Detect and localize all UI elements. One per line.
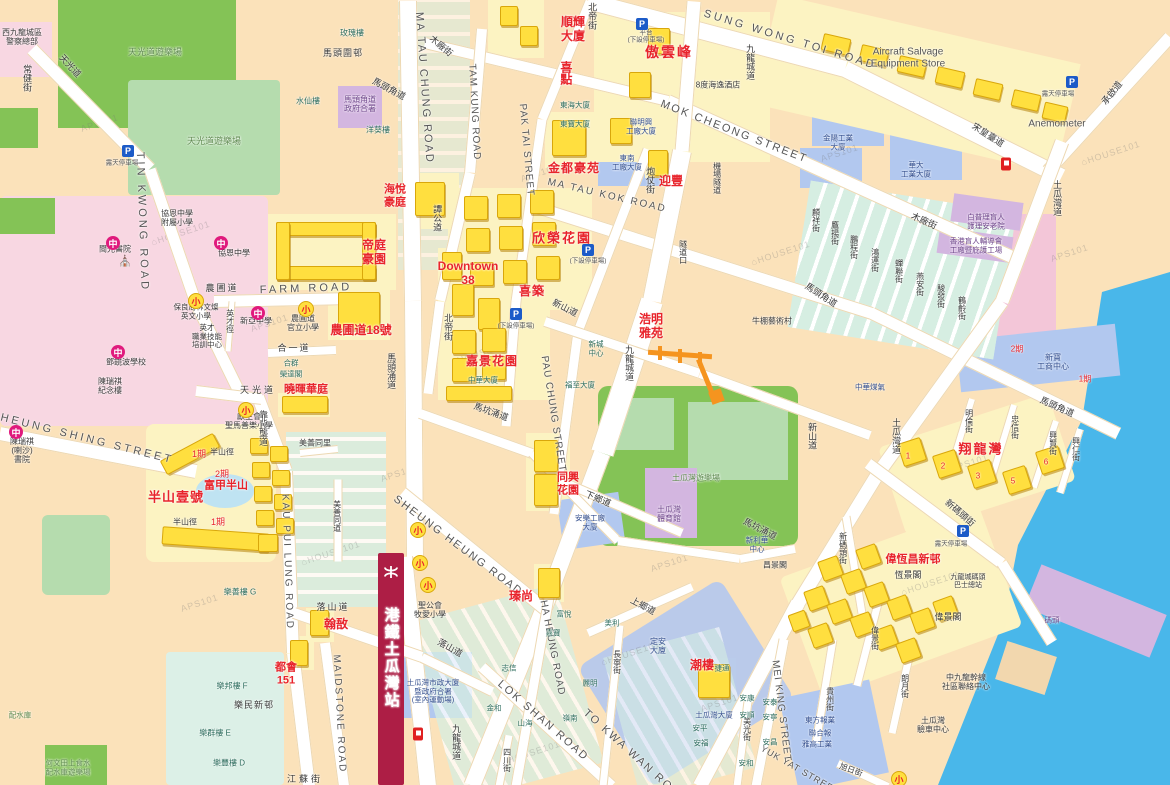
estate-one-lasalle: 半山壹號 <box>148 491 204 506</box>
street-pang-ching: 鵬程街 <box>849 235 858 259</box>
estate-tower <box>482 328 506 352</box>
bldg-fu-yuet: 富悅 <box>557 611 572 620</box>
street-wai-king: 偉景街 <box>870 626 879 650</box>
bldg-sun-po-centre: 新寶 工商中心 <box>1037 353 1069 371</box>
estate-hei-dim: 喜點 <box>558 61 572 85</box>
poi-aircraft-salvage: Aircraft Salvage Equipment Store <box>871 47 946 70</box>
estate-hiu-fai-court: 曉暉華庭 <box>284 384 328 397</box>
bldg-to-kwa-wan-mansion: 土瓜灣大廈 <box>695 712 733 721</box>
poi-harbour-plaza-8-degrees: 8度海逸酒店 <box>696 80 740 89</box>
street-hop-yat: 合一道 <box>277 343 310 353</box>
street-tsun-fat: 駿發街 <box>936 284 945 308</box>
secondary-school-icon: 中 <box>214 236 228 250</box>
street-pak-tai-zh-2: 北帝街 <box>443 314 453 341</box>
estate-tower <box>252 462 270 478</box>
estate-sky-tower: 傲雲峰 <box>645 44 693 60</box>
bldg-rose-house: 玫瑰樓 <box>340 28 364 37</box>
tower-no-3: 3 <box>976 471 980 480</box>
parking-icon: P <box>957 525 969 537</box>
poi-airport-tunnel: 機場隧道 <box>712 162 721 194</box>
bldg-wai-king-court: 偉景閣 <box>934 612 961 622</box>
estate-lok-man-sun-chuen: 樂民新邨 <box>234 700 274 710</box>
estate-chiu-lau: 潮樓 <box>690 659 714 673</box>
petrol-station-icon <box>413 728 423 741</box>
bldg-chung-wah: 中華大廈 <box>468 377 498 386</box>
bldg-shan-hoi: 山海 <box>518 720 533 729</box>
poi-carpark-below-1: (下設停車場) <box>570 257 607 264</box>
poi-ferry-bus-terminus: 九龍城碼頭 巴士總站 <box>951 574 986 590</box>
primary-school-icon: 小 <box>412 555 428 571</box>
estate-celestial-heights: 富甲半山 <box>204 480 248 493</box>
mtr-logo-icon <box>382 563 400 581</box>
parking-icon: P <box>122 145 134 157</box>
watermark: ⌂HOUSE101 <box>1080 139 1142 168</box>
estate-ka-king-garden: 嘉景花園 <box>466 355 518 369</box>
tower-no-2: 2 <box>941 461 945 470</box>
street-yin-on: 燕安街 <box>915 272 924 296</box>
park-to-kwa-wan: 土瓜灣遊樂場 <box>672 473 720 482</box>
street-to-kwa-wan-zh-2: 土瓜灣道 <box>891 418 901 454</box>
estate-tower <box>500 6 518 26</box>
petrol-pump-window <box>416 730 421 735</box>
secondary-school-icon: 中 <box>9 425 23 439</box>
street-tam-kung-zh: 譚公道 <box>432 205 442 232</box>
street-cheung-ning: 長寧街 <box>612 650 621 674</box>
street-sim-luen: 蟬聯街 <box>894 259 903 283</box>
poi-gov-offices: 馬頭角道 政府合署 <box>344 95 376 113</box>
street-half-hill-path-2: 半山徑 <box>173 517 197 526</box>
poi-open-carpark-1: 露天停車場 <box>106 159 139 166</box>
bldg-narcissus-house: 水仙樓 <box>296 96 320 105</box>
bldg-kam-wo: 金和 <box>487 705 502 714</box>
poi-open-carpark-3: 露天停車場 <box>935 540 968 547</box>
estate-hei-chuk: 喜築 <box>519 285 545 299</box>
bldg-oriental-press: 東方報業 <box>805 717 835 726</box>
school-good-shepherd: 聖公會 牧愛小學 <box>414 601 446 619</box>
bldg-nga-ko-industrial: 雅高工業 <box>802 741 832 750</box>
bldg-ling-nam: 嶺南 <box>563 715 578 724</box>
park-ho-man-tin-reservoir: 何文田上食水 配水庫遊樂場 <box>46 759 91 776</box>
estate-tower <box>536 256 560 280</box>
estate-tower <box>446 386 512 401</box>
estate-tower <box>282 396 328 413</box>
pitch-2 <box>688 402 788 480</box>
tower-no-1: 1 <box>906 451 910 460</box>
bldg-tung-nam-factory: 東南 工廠大廈 <box>612 154 642 171</box>
estate-downtown-38: Downtown 38 <box>438 260 499 288</box>
watermark: APS101 <box>179 592 219 614</box>
bldg-on-wo: 安和 <box>739 760 754 769</box>
estate-tower <box>270 446 288 462</box>
street-hok-ling: 鶴齡街 <box>957 296 966 320</box>
street-chung-sun: 忠信街 <box>1010 415 1019 439</box>
estate-chun-seung: 瑧尚 <box>509 590 533 604</box>
primary-school-icon: 小 <box>420 577 436 593</box>
street-kowloon-city-3: 九龍城道 <box>451 724 461 760</box>
street-lun-cheung: 麟祥街 <box>811 208 820 232</box>
secondary-school-icon: 中 <box>251 306 265 320</box>
bldg-chi-shun: 志信 <box>502 665 517 674</box>
bldg-on-cheong: 安昌 <box>763 739 778 748</box>
estate-tower <box>256 510 274 526</box>
orange-footbridge-2 <box>658 346 662 360</box>
park-tin-kwong-label-2: 天光道遊樂場 <box>187 136 241 146</box>
estate-18-farm-road: 農圃道18號 <box>330 324 391 338</box>
poi-blind-workshop: 香港盲人輔導會 工廠暨庇護工場 <box>950 237 1003 254</box>
bldg-yeung-kwai-house: 洋葵樓 <box>366 125 390 134</box>
street-tin-kwong-zh-2: 天光道 <box>240 385 276 395</box>
bldg-tung-po: 東寶大廈 <box>560 121 590 130</box>
bldg-tung-hoi: 東海大廈 <box>560 102 590 111</box>
sun-po-phase-1: 1期 <box>1079 374 1091 383</box>
estate-tung-hing-garden: 同興 花園 <box>557 471 579 496</box>
street-sze-chuen: 四川街 <box>502 748 511 772</box>
petrol-station-icon <box>1001 158 1011 171</box>
poi-podium-carpark: 平台 (下設停車場) <box>628 30 665 45</box>
estate-grand-waterfront: 翔龍灣 <box>958 443 1003 458</box>
poi-vehicle-exam-centre: 土瓜灣 驗車中心 <box>917 716 949 734</box>
estate-tower <box>276 222 290 280</box>
school-heep-yunn: 協恩中學 <box>218 248 250 257</box>
bldg-san-lee-wah: 新利華 中心 <box>746 536 769 553</box>
poi-anemometer: Anemometer <box>1028 118 1085 130</box>
tower-no-5: 5 <box>1011 476 1015 485</box>
petrol-pump-window <box>1004 160 1009 165</box>
street-kowloon-city-1: 九龍城道 <box>745 44 755 80</box>
school-chan-sui-ki-lasalle: 陳瑞祺 (喇沙) 書院 <box>10 437 34 465</box>
street-hing-yin: 興賢街 <box>1048 431 1057 455</box>
park-left-2 <box>0 198 55 234</box>
map-canvas[interactable]: SHEUNG SHING STREETTIN KWONG ROADMA TAU … <box>0 0 1170 785</box>
school-tang-king-po: 鄧鏡波學校 <box>106 357 146 366</box>
bldg-on-shun: 安順 <box>740 712 755 721</box>
street-long-yuet: 朗月街 <box>900 674 909 698</box>
sports-courts-sw <box>42 515 110 595</box>
estate-hon-yu: 翰敔 <box>324 618 348 632</box>
estate-shun-fai: 順輝 大廈 <box>561 16 585 44</box>
street-lok-shan-zh-1: 落山道 <box>316 602 349 612</box>
parking-icon: P <box>636 18 648 30</box>
bldg-kam-yeung-factory: 金陽工業 大廈 <box>823 134 853 151</box>
street-ming-lun: 明倫街 <box>964 409 973 433</box>
street-pau-chung-zh: 炮仗街 <box>645 167 655 194</box>
poi-cattle-depot: 牛棚藝術村 <box>752 316 792 325</box>
bldg-cheong-king-court: 昌景閣 <box>763 560 787 569</box>
poi-police-hq: 西九龍城區 警察總部 <box>2 28 42 46</box>
street-maidstone: MAIDSTONE ROAD <box>330 654 348 773</box>
bldg-on-fook: 安福 <box>694 740 709 749</box>
street-half-hill-path-1: 半山徑 <box>210 447 234 456</box>
secondary-school-icon: 中 <box>106 236 120 250</box>
street-to-kwa-wan-zh-1: 土瓜灣道 <box>1052 180 1062 216</box>
parking-icon: P <box>510 308 522 320</box>
primary-school-icon: 小 <box>238 402 254 418</box>
bldg-wing-tat: 榮達閣 <box>280 371 303 380</box>
poi-ferry-pier: 碼頭 <box>1045 617 1060 626</box>
street-kowloon-city-2: 九龍城道 <box>624 345 634 381</box>
tower-no-6: 6 <box>1044 457 1048 466</box>
church-icon: ⛪ <box>118 255 132 268</box>
street-ma-tau-chung-zh: 馬頭涌道 <box>386 353 396 389</box>
bldg-hang-king-court: 恆景閣 <box>894 570 921 580</box>
bldg-chan-sui-ki-memorial: 陳瑞祺 紀念樓 <box>98 377 122 395</box>
estate-tower <box>254 486 272 502</box>
primary-school-icon: 小 <box>298 301 314 317</box>
poi-bradbury-blind-home: 白普理盲人 護理安老院 <box>967 213 1005 230</box>
bldg-ka-po: 嘉寶 <box>546 630 561 639</box>
street-ying-yeung: 鷹揚街 <box>830 221 839 245</box>
street-hung-wan: 鴻運街 <box>870 248 879 272</box>
estate-tower <box>466 228 490 252</box>
street-mei-kwong: 美光街 <box>742 717 751 741</box>
primary-school-icon: 小 <box>188 293 204 309</box>
bldg-luen-ming-hing: 聯明興 工廠大廈 <box>626 118 656 135</box>
bldg-lai-ming: 麗明 <box>583 680 598 689</box>
sun-po-phase-2: 2期 <box>1011 344 1023 353</box>
estate-tower <box>276 266 376 280</box>
poi-tkw-sports-centre: 土瓜灣 體育館 <box>657 505 681 523</box>
estate-tower <box>272 470 290 486</box>
primary-school-icon: 小 <box>891 771 907 785</box>
street-maidstone-lane: 美善同里 <box>299 438 331 447</box>
primary-school-icon: 小 <box>410 522 426 538</box>
street-san-shan-2: 新山道 <box>807 423 817 450</box>
estate-tower <box>499 226 523 250</box>
bldg-new-town-centre: 新城 中心 <box>589 340 604 357</box>
estate-imperial-court: 帝庭 豪園 <box>362 239 386 267</box>
estate-tower <box>629 72 651 98</box>
estate-ying-fung: 迎豐 <box>659 175 683 189</box>
parking-icon: P <box>582 244 594 256</box>
bldg-on-lok-factory: 安樂工廠 大廈 <box>575 514 605 531</box>
bldg-on-hong: 安康 <box>740 695 755 704</box>
street-maidstone-zh: 美善同道 <box>332 500 341 532</box>
estate-tower <box>520 26 538 46</box>
poi-service-reservoir: 配水庫 <box>9 712 32 721</box>
estate-marina-lodge: 海悅 豪庭 <box>384 183 406 208</box>
poi-training-centre: 英才 職業技能 培訓中心 <box>192 324 222 350</box>
estate-tower <box>538 568 560 598</box>
estate-tower <box>276 222 376 236</box>
bldg-mei-lee: 美利 <box>605 620 620 629</box>
bldg-on-ping: 安平 <box>693 725 708 734</box>
mtr-to-kwa-wan-station-label: 港鐵土瓜灣站 <box>382 607 399 709</box>
bldg-on-tai: 安泰 <box>763 699 778 708</box>
poi-carpark-below-2: (下設停車場) <box>498 322 535 329</box>
estate-tower <box>464 196 488 220</box>
poi-open-carpark-2: 露天停車場 <box>1042 90 1075 97</box>
bldg-fook-chi: 福至大廈 <box>565 382 595 391</box>
estate-golden-dragon: 金都豪苑 <box>548 162 600 176</box>
street-san-ma-tau-2: 新碼頭街 <box>838 532 847 564</box>
estate-wai-hang-cheong: 偉恆昌新邨 <box>886 554 941 567</box>
street-kwei-chow: 貴州街 <box>825 687 834 711</box>
street-sheung-kin: 常健街 <box>22 65 32 92</box>
park-left-1 <box>0 108 38 148</box>
estate-phase-2: 2期 <box>215 469 229 479</box>
street-pak-tai-zh-1: 北帝街 <box>587 3 597 30</box>
street-kiang-su: 江蘇街 <box>287 774 323 784</box>
poi-tkw-municipal-building: 土瓜灣市政大廈 暨政府合署 (室內運動場) <box>407 679 460 705</box>
estate-ho-ming-court: 浩明 雅苑 <box>639 313 663 341</box>
estate-tower <box>452 284 474 316</box>
street-hing-yan: 興仁街 <box>1071 437 1080 461</box>
school-heep-yunn-primary: 協恩中學 附屬小學 <box>161 209 193 227</box>
bldg-lok-sin: 樂善樓 G <box>224 587 256 596</box>
estate-phase-1a: 1期 <box>192 449 206 459</box>
road-segment-46 <box>418 408 534 458</box>
bldg-chit-tung: 捷通 <box>715 665 730 674</box>
estate-tower <box>534 474 558 506</box>
parking-icon: P <box>1066 76 1078 88</box>
bldg-lok-kwan: 樂群樓 E <box>199 728 231 737</box>
bldg-lok-fung: 樂豐樓 D <box>213 758 245 767</box>
poi-towngas: 中華煤氣 <box>855 384 885 393</box>
poi-central-kowloon-route: 中九龍幹線 社區聯絡中心 <box>942 673 990 691</box>
orange-footbridge-3 <box>678 349 682 363</box>
bldg-on-ning: 安寧 <box>763 714 778 723</box>
bldg-wah-tai-factory: 華大 工業大廈 <box>901 161 931 178</box>
estate-tower <box>452 330 476 354</box>
secondary-school-icon: 中 <box>111 345 125 359</box>
bldg-ting-on: 定安 大廈 <box>650 637 666 655</box>
bldg-hop-kwan: 合群 <box>284 360 299 369</box>
street-farm-road-zh: 農圃道 <box>205 283 238 293</box>
estate-metro-151: 都會 151 <box>275 661 297 686</box>
estate-tower <box>258 534 278 552</box>
estate-ma-tau-wai: 馬頭圍邨 <box>323 48 363 58</box>
estate-tower <box>497 194 521 218</box>
estate-tower <box>503 260 527 284</box>
park-tin-kwong-label-1: 天光道遊樂場 <box>128 47 182 57</box>
estate-phase-1b: 1期 <box>211 517 225 527</box>
bldg-lok-bong: 樂邦樓 F <box>216 681 247 690</box>
street-ying-choi-path: 英才徑 <box>225 309 234 333</box>
poi-tunnel-mouth: 隧道口 <box>678 240 687 264</box>
bldg-united-daily: 聯合報 <box>809 730 832 739</box>
